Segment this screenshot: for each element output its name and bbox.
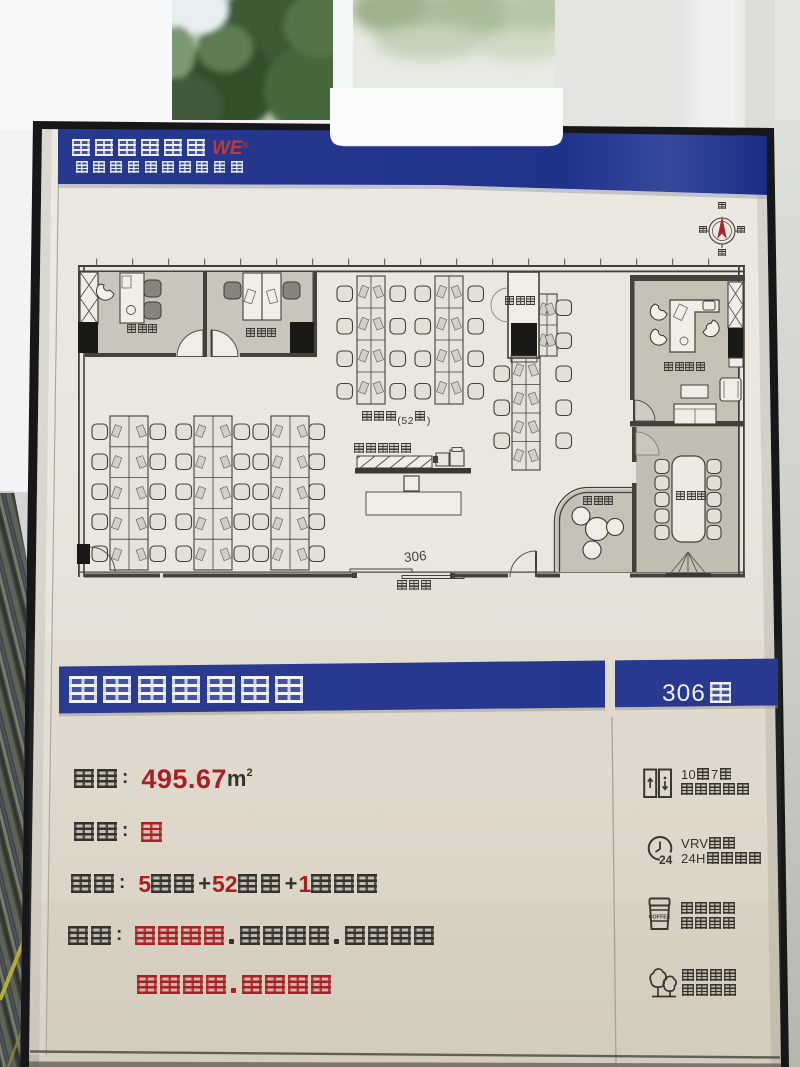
- svg-text:COFFEE: COFFEE: [649, 915, 671, 921]
